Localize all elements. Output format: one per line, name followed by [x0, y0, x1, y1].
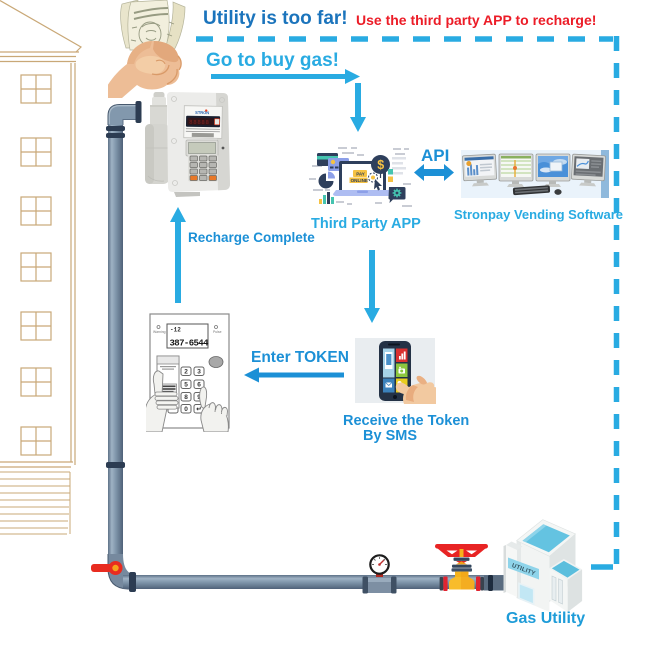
svg-text:6: 6	[197, 382, 201, 389]
svg-text:88888: 88888	[189, 119, 210, 126]
svg-text:Warning: Warning	[153, 330, 166, 334]
svg-text:Pulse: Pulse	[213, 330, 222, 334]
svg-text:-12: -12	[170, 327, 181, 334]
svg-text:2: 2	[184, 369, 188, 376]
svg-text:3: 3	[197, 369, 201, 376]
svg-text:ONLINE: ONLINE	[351, 178, 368, 183]
svg-text:$: $	[377, 158, 384, 172]
svg-text:0: 0	[184, 406, 188, 413]
svg-text:5: 5	[184, 382, 188, 389]
svg-text:PAY: PAY	[356, 171, 365, 176]
svg-text:387-6544: 387-6544	[170, 339, 210, 349]
svg-text:↵: ↵	[196, 406, 201, 413]
svg-text:8: 8	[184, 394, 188, 401]
